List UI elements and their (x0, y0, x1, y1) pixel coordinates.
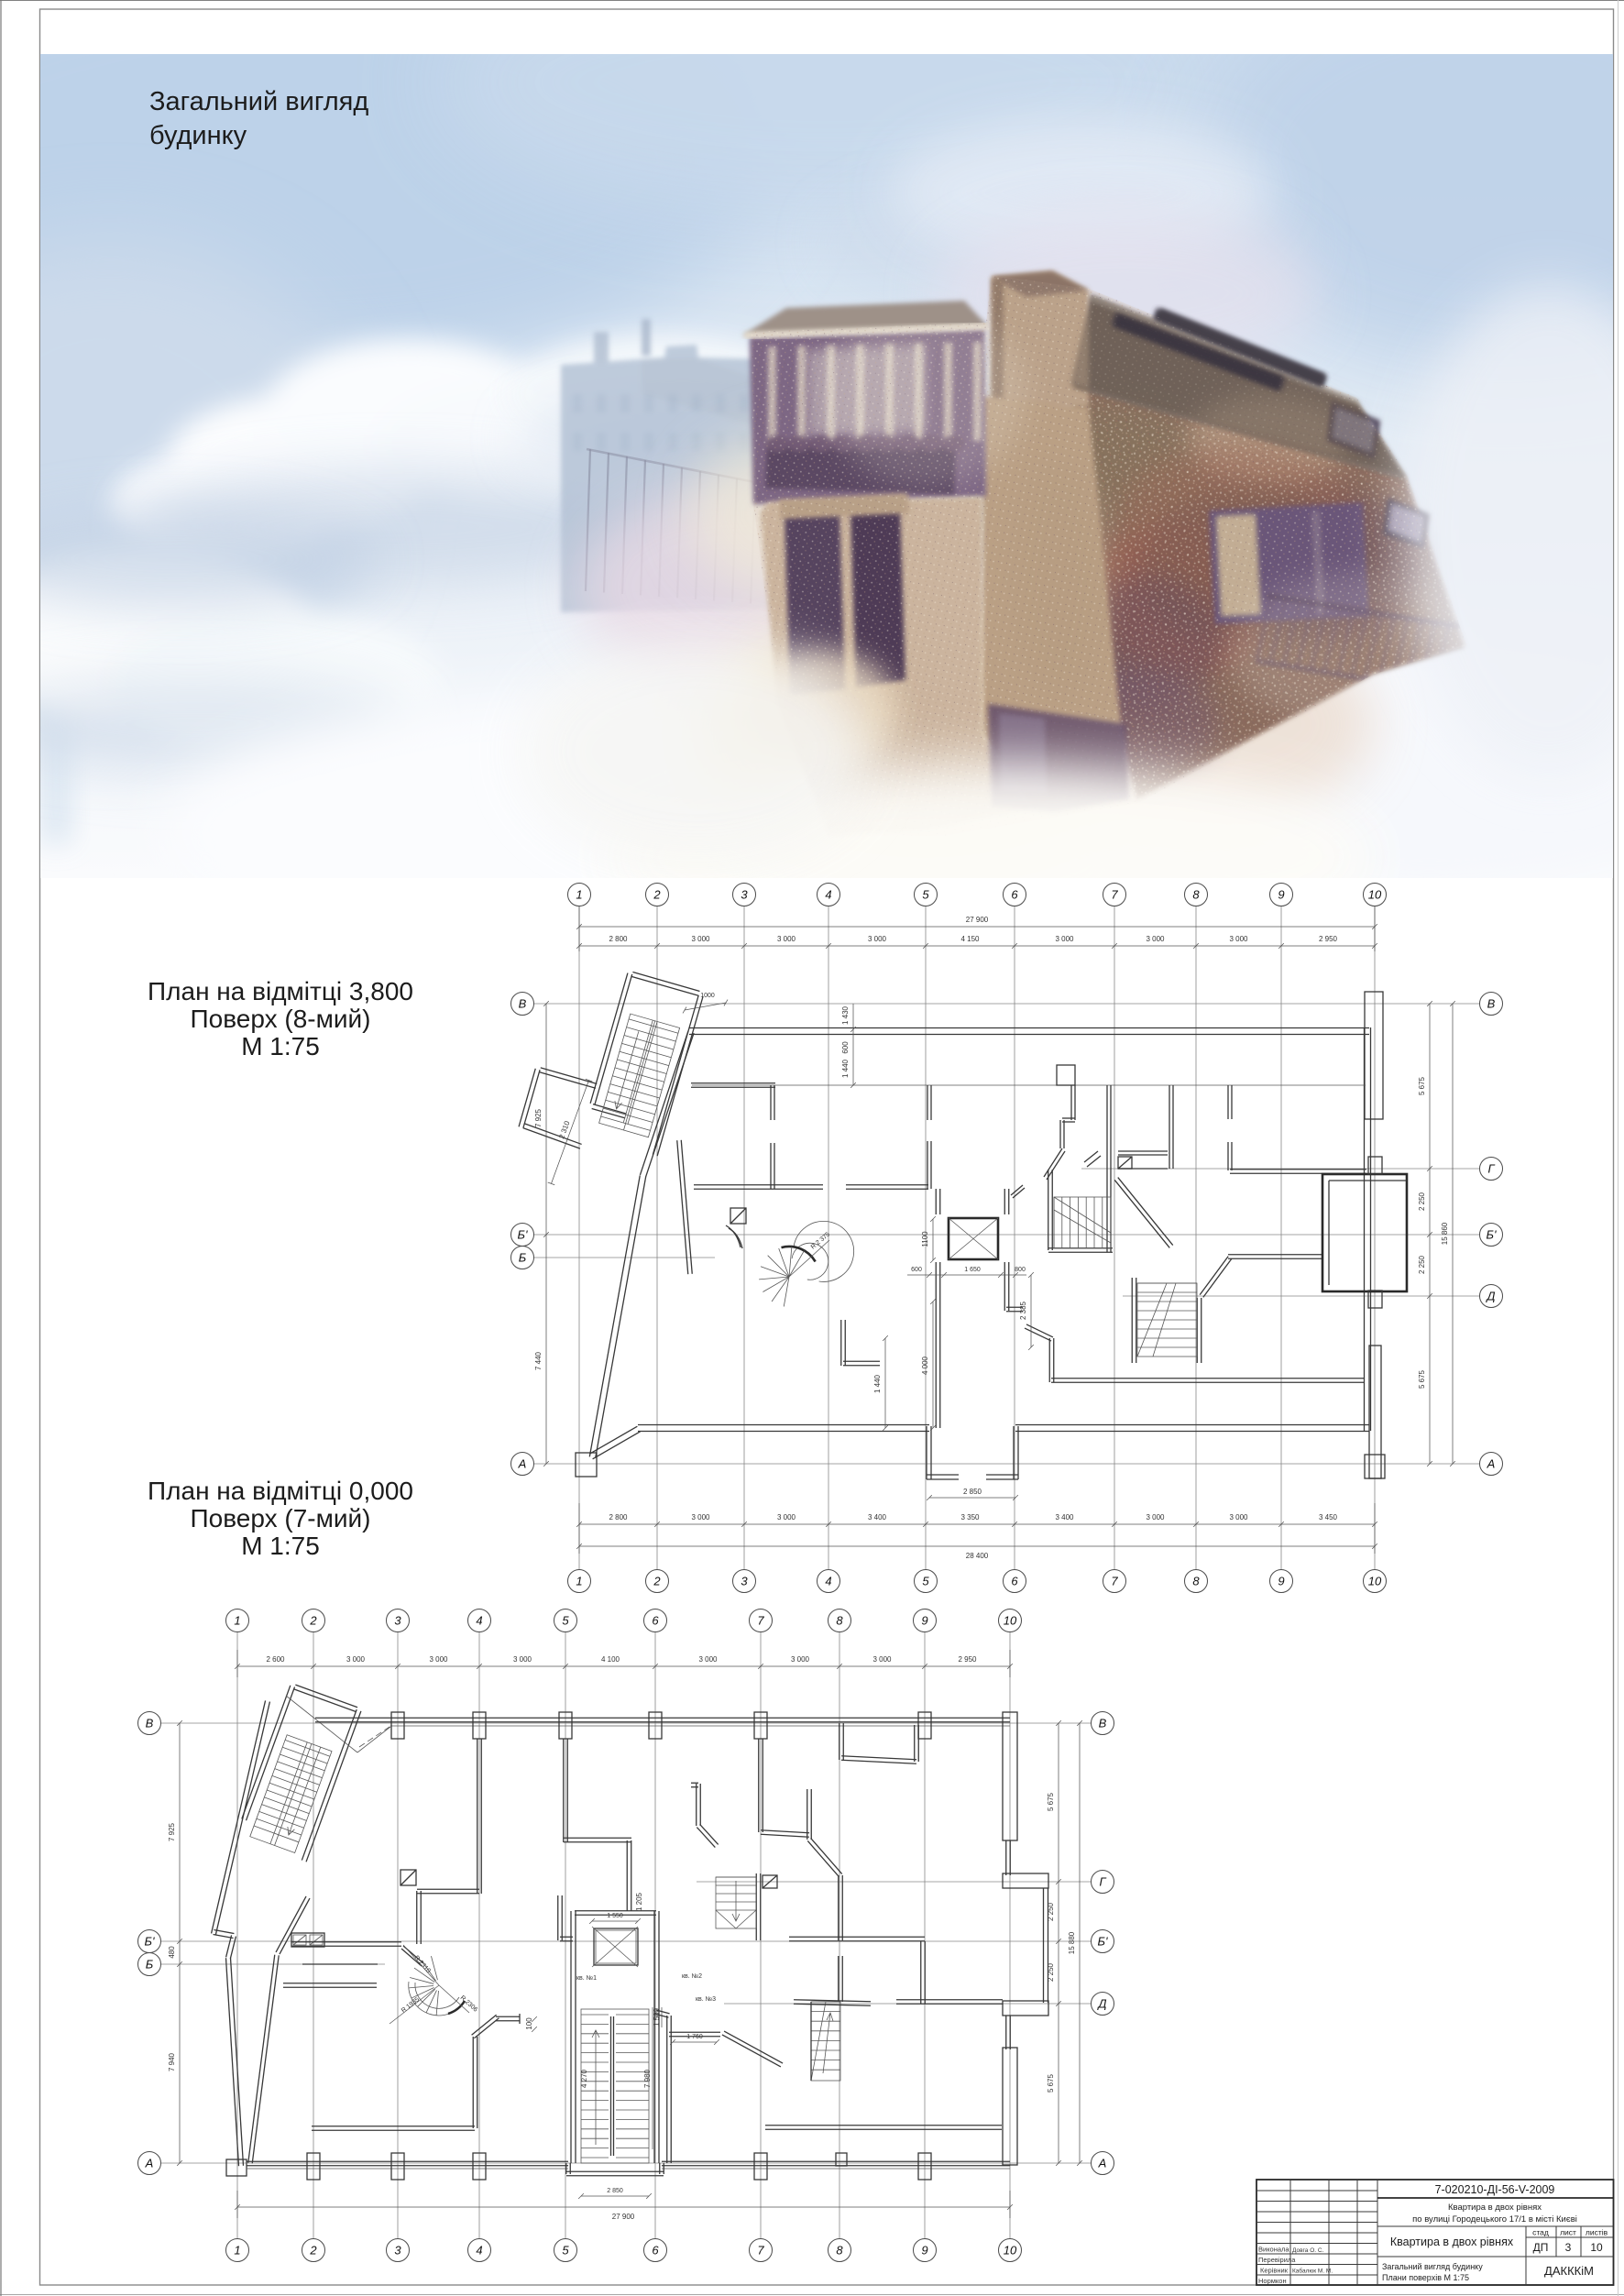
svg-text:3 000: 3 000 (1146, 935, 1165, 943)
svg-text:План на відмітці 0,000: План на відмітці 0,000 (148, 1477, 413, 1505)
svg-text:6: 6 (652, 1614, 659, 1628)
svg-text:1000: 1000 (700, 993, 715, 999)
svg-text:10: 10 (1004, 1614, 1017, 1628)
svg-text:7 440: 7 440 (534, 1351, 543, 1370)
svg-text:3 000: 3 000 (1055, 935, 1074, 943)
svg-text:3 000: 3 000 (872, 1655, 892, 1664)
svg-text:5: 5 (922, 888, 929, 902)
svg-text:2 250: 2 250 (1418, 1255, 1426, 1274)
svg-text:2: 2 (653, 1575, 661, 1588)
svg-text:8: 8 (836, 2244, 843, 2258)
svg-text:3 000: 3 000 (346, 1655, 366, 1664)
svg-text:800: 800 (1015, 1267, 1026, 1273)
svg-text:4: 4 (825, 1575, 831, 1588)
svg-text:7: 7 (757, 2244, 764, 2258)
svg-text:5 675: 5 675 (1418, 1369, 1426, 1389)
svg-text:5: 5 (922, 1575, 929, 1588)
svg-text:3 000: 3 000 (791, 1655, 810, 1664)
svg-text:7: 7 (1111, 888, 1118, 902)
svg-text:5: 5 (562, 1614, 569, 1628)
svg-text:3 000: 3 000 (691, 935, 710, 943)
svg-text:3 000: 3 000 (691, 1513, 710, 1522)
svg-text:1 440: 1 440 (841, 1059, 850, 1078)
svg-text:Виконала: Виконала (1258, 2246, 1289, 2254)
svg-text:7 940: 7 940 (168, 2052, 176, 2071)
svg-text:15 860: 15 860 (1441, 1222, 1449, 1245)
svg-text:Загальний вигляд будинку: Загальний вигляд будинку (1382, 2262, 1483, 2271)
svg-text:5 675: 5 675 (1047, 1792, 1055, 1811)
svg-text:2 950: 2 950 (958, 1655, 977, 1664)
svg-text:3 000: 3 000 (429, 1655, 448, 1664)
svg-text:М 1:75: М 1:75 (241, 1032, 320, 1060)
svg-text:Б': Б' (518, 1228, 528, 1242)
svg-text:7 925: 7 925 (534, 1108, 543, 1127)
svg-text:1100: 1100 (921, 1231, 929, 1247)
svg-text:3: 3 (394, 1614, 401, 1628)
svg-text:3: 3 (741, 1575, 748, 1588)
svg-text:600: 600 (841, 1041, 850, 1054)
svg-text:2 800: 2 800 (609, 935, 628, 943)
svg-text:по вулиці Городецького 17/1 в: по вулиці Городецького 17/1 в місті Києв… (1412, 2214, 1577, 2225)
svg-text:ДАКККіМ: ДАКККіМ (1544, 2264, 1594, 2278)
svg-text:3: 3 (741, 888, 748, 902)
svg-text:3 000: 3 000 (1229, 1513, 1248, 1522)
svg-text:В: В (1099, 1717, 1107, 1730)
svg-text:9: 9 (1278, 888, 1284, 902)
svg-text:1: 1 (234, 1614, 240, 1628)
svg-text:Керівник: Керівник (1260, 2267, 1289, 2275)
svg-text:4 000: 4 000 (921, 1356, 929, 1375)
svg-text:1: 1 (234, 2244, 240, 2258)
svg-text:28 400: 28 400 (966, 1552, 989, 1560)
svg-text:9: 9 (921, 1614, 927, 1628)
svg-text:кв. №2: кв. №2 (682, 1973, 702, 1980)
svg-text:кв. №1: кв. №1 (576, 1975, 597, 1982)
svg-text:стад: стад (1532, 2228, 1549, 2237)
svg-text:3 000: 3 000 (868, 935, 887, 943)
svg-text:10: 10 (1590, 2241, 1603, 2254)
svg-text:5: 5 (562, 2244, 569, 2258)
svg-text:7-020210-ДІ-56-V-2009: 7-020210-ДІ-56-V-2009 (1435, 2183, 1555, 2196)
svg-text:В: В (1487, 997, 1496, 1011)
svg-text:3 400: 3 400 (868, 1513, 887, 1522)
svg-text:4: 4 (825, 888, 831, 902)
svg-text:Поверх (8-мий): Поверх (8-мий) (191, 1005, 371, 1033)
svg-text:1 550: 1 550 (607, 1913, 623, 1919)
svg-text:3 000: 3 000 (1146, 1513, 1165, 1522)
svg-text:3 400: 3 400 (1055, 1513, 1074, 1522)
svg-text:Г: Г (1099, 1875, 1106, 1889)
svg-text:7: 7 (1111, 1575, 1118, 1588)
svg-text:2 250: 2 250 (1418, 1192, 1426, 1211)
svg-text:5 675: 5 675 (1418, 1076, 1426, 1095)
svg-text:10: 10 (1368, 1575, 1382, 1588)
svg-text:В: В (146, 1717, 154, 1730)
svg-text:3 000: 3 000 (777, 935, 796, 943)
svg-text:8: 8 (1192, 888, 1200, 902)
svg-text:6: 6 (1011, 1575, 1018, 1588)
svg-text:Б': Б' (1487, 1228, 1497, 1242)
svg-text:Нормкон: Нормкон (1258, 2277, 1287, 2285)
svg-text:А: А (1098, 2157, 1107, 2170)
svg-text:1 430: 1 430 (841, 1005, 850, 1025)
svg-text:План на відмітці 3,800: План на відмітці 3,800 (148, 977, 413, 1005)
svg-text:Д: Д (1096, 1997, 1106, 2011)
svg-text:Поверх (7-мий): Поверх (7-мий) (191, 1504, 371, 1532)
svg-text:1: 1 (576, 888, 582, 902)
svg-text:ДП: ДП (1533, 2241, 1549, 2254)
svg-text:10: 10 (1368, 888, 1382, 902)
svg-text:7: 7 (757, 1614, 764, 1628)
svg-text:4 150: 4 150 (960, 935, 980, 943)
svg-text:Плани поверхів М 1:75: Плани поверхів М 1:75 (1382, 2273, 1469, 2282)
svg-text:Б: Б (146, 1958, 154, 1972)
svg-text:15 880: 15 880 (1068, 1931, 1076, 1954)
svg-text:4: 4 (476, 2244, 482, 2258)
svg-text:2: 2 (309, 1614, 317, 1628)
svg-text:10: 10 (1004, 2244, 1017, 2258)
svg-text:Загальний вигляд: Загальний вигляд (149, 87, 368, 116)
svg-text:1 650: 1 650 (964, 1267, 981, 1273)
svg-text:5 675: 5 675 (1047, 2073, 1055, 2093)
svg-text:27 900: 27 900 (612, 2213, 635, 2221)
svg-text:480: 480 (168, 1946, 176, 1959)
svg-text:В: В (519, 997, 527, 1011)
svg-text:А: А (1487, 1457, 1496, 1471)
svg-text:1 440: 1 440 (873, 1374, 882, 1393)
svg-text:6: 6 (652, 2244, 659, 2258)
svg-text:А: А (518, 1457, 527, 1471)
svg-text:6: 6 (1011, 888, 1018, 902)
svg-text:3: 3 (1565, 2241, 1572, 2254)
svg-text:8: 8 (836, 1614, 843, 1628)
svg-text:2: 2 (309, 2244, 317, 2258)
svg-text:Квартира в двох рівнях: Квартира в двох рівнях (1390, 2236, 1514, 2248)
svg-text:Г: Г (1487, 1162, 1495, 1176)
svg-text:2 850: 2 850 (963, 1488, 982, 1496)
svg-text:Перевірила: Перевірила (1258, 2256, 1296, 2264)
svg-text:3 000: 3 000 (777, 1513, 796, 1522)
svg-text:4 100: 4 100 (601, 1655, 620, 1664)
svg-text:8: 8 (1192, 1575, 1200, 1588)
svg-text:Квартира в двох рівнях: Квартира в двох рівнях (1448, 2203, 1542, 2213)
svg-text:2: 2 (653, 888, 661, 902)
svg-text:1 205: 1 205 (635, 1892, 643, 1911)
svg-text:2 850: 2 850 (607, 2188, 623, 2194)
svg-text:А: А (145, 2157, 154, 2170)
svg-text:27 900: 27 900 (966, 916, 989, 924)
svg-text:кв. №3: кв. №3 (696, 1996, 716, 2003)
svg-text:3: 3 (394, 2244, 401, 2258)
svg-text:7 925: 7 925 (168, 1822, 176, 1841)
svg-text:3 000: 3 000 (698, 1655, 718, 1664)
svg-text:9: 9 (1278, 1575, 1284, 1588)
svg-text:7 980: 7 980 (643, 2069, 652, 2088)
svg-text:2 600: 2 600 (266, 1655, 285, 1664)
svg-text:4 270: 4 270 (580, 2069, 588, 2088)
svg-text:4: 4 (476, 1614, 482, 1628)
svg-text:3 000: 3 000 (1229, 935, 1248, 943)
svg-text:будинку: будинку (149, 121, 247, 150)
svg-text:1: 1 (576, 1575, 582, 1588)
svg-text:М 1:75: М 1:75 (241, 1532, 320, 1560)
svg-text:Б': Б' (145, 1935, 155, 1949)
svg-text:3 350: 3 350 (960, 1513, 980, 1522)
svg-text:9: 9 (921, 2244, 927, 2258)
svg-text:3 450: 3 450 (1319, 1513, 1338, 1522)
svg-text:Б': Б' (1098, 1935, 1108, 1949)
svg-text:Д: Д (1485, 1290, 1495, 1303)
svg-text:Кабалюк М. М.: Кабалюк М. М. (1292, 2268, 1333, 2275)
svg-text:2 800: 2 800 (609, 1513, 628, 1522)
svg-text:листів: листів (1586, 2228, 1608, 2237)
svg-text:100: 100 (525, 2017, 533, 2030)
svg-text:лист: лист (1560, 2228, 1576, 2237)
svg-text:Довга О. С.: Довга О. С. (1292, 2247, 1324, 2254)
svg-text:Б: Б (519, 1251, 527, 1265)
svg-text:2 385: 2 385 (1019, 1301, 1027, 1320)
svg-text:600: 600 (911, 1267, 922, 1273)
svg-text:1 760: 1 760 (686, 2034, 703, 2040)
svg-text:2 950: 2 950 (1319, 935, 1338, 943)
svg-text:3 000: 3 000 (513, 1655, 532, 1664)
